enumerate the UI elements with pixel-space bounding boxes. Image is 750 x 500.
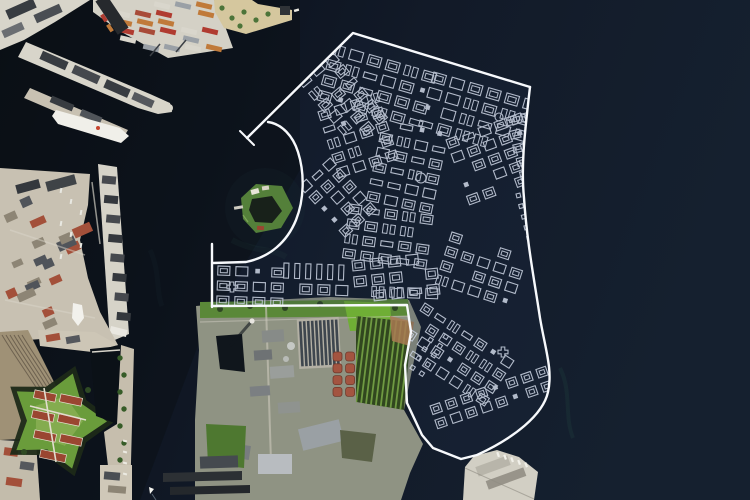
satellite-map <box>0 0 750 500</box>
satellite-map-stage <box>0 0 750 500</box>
